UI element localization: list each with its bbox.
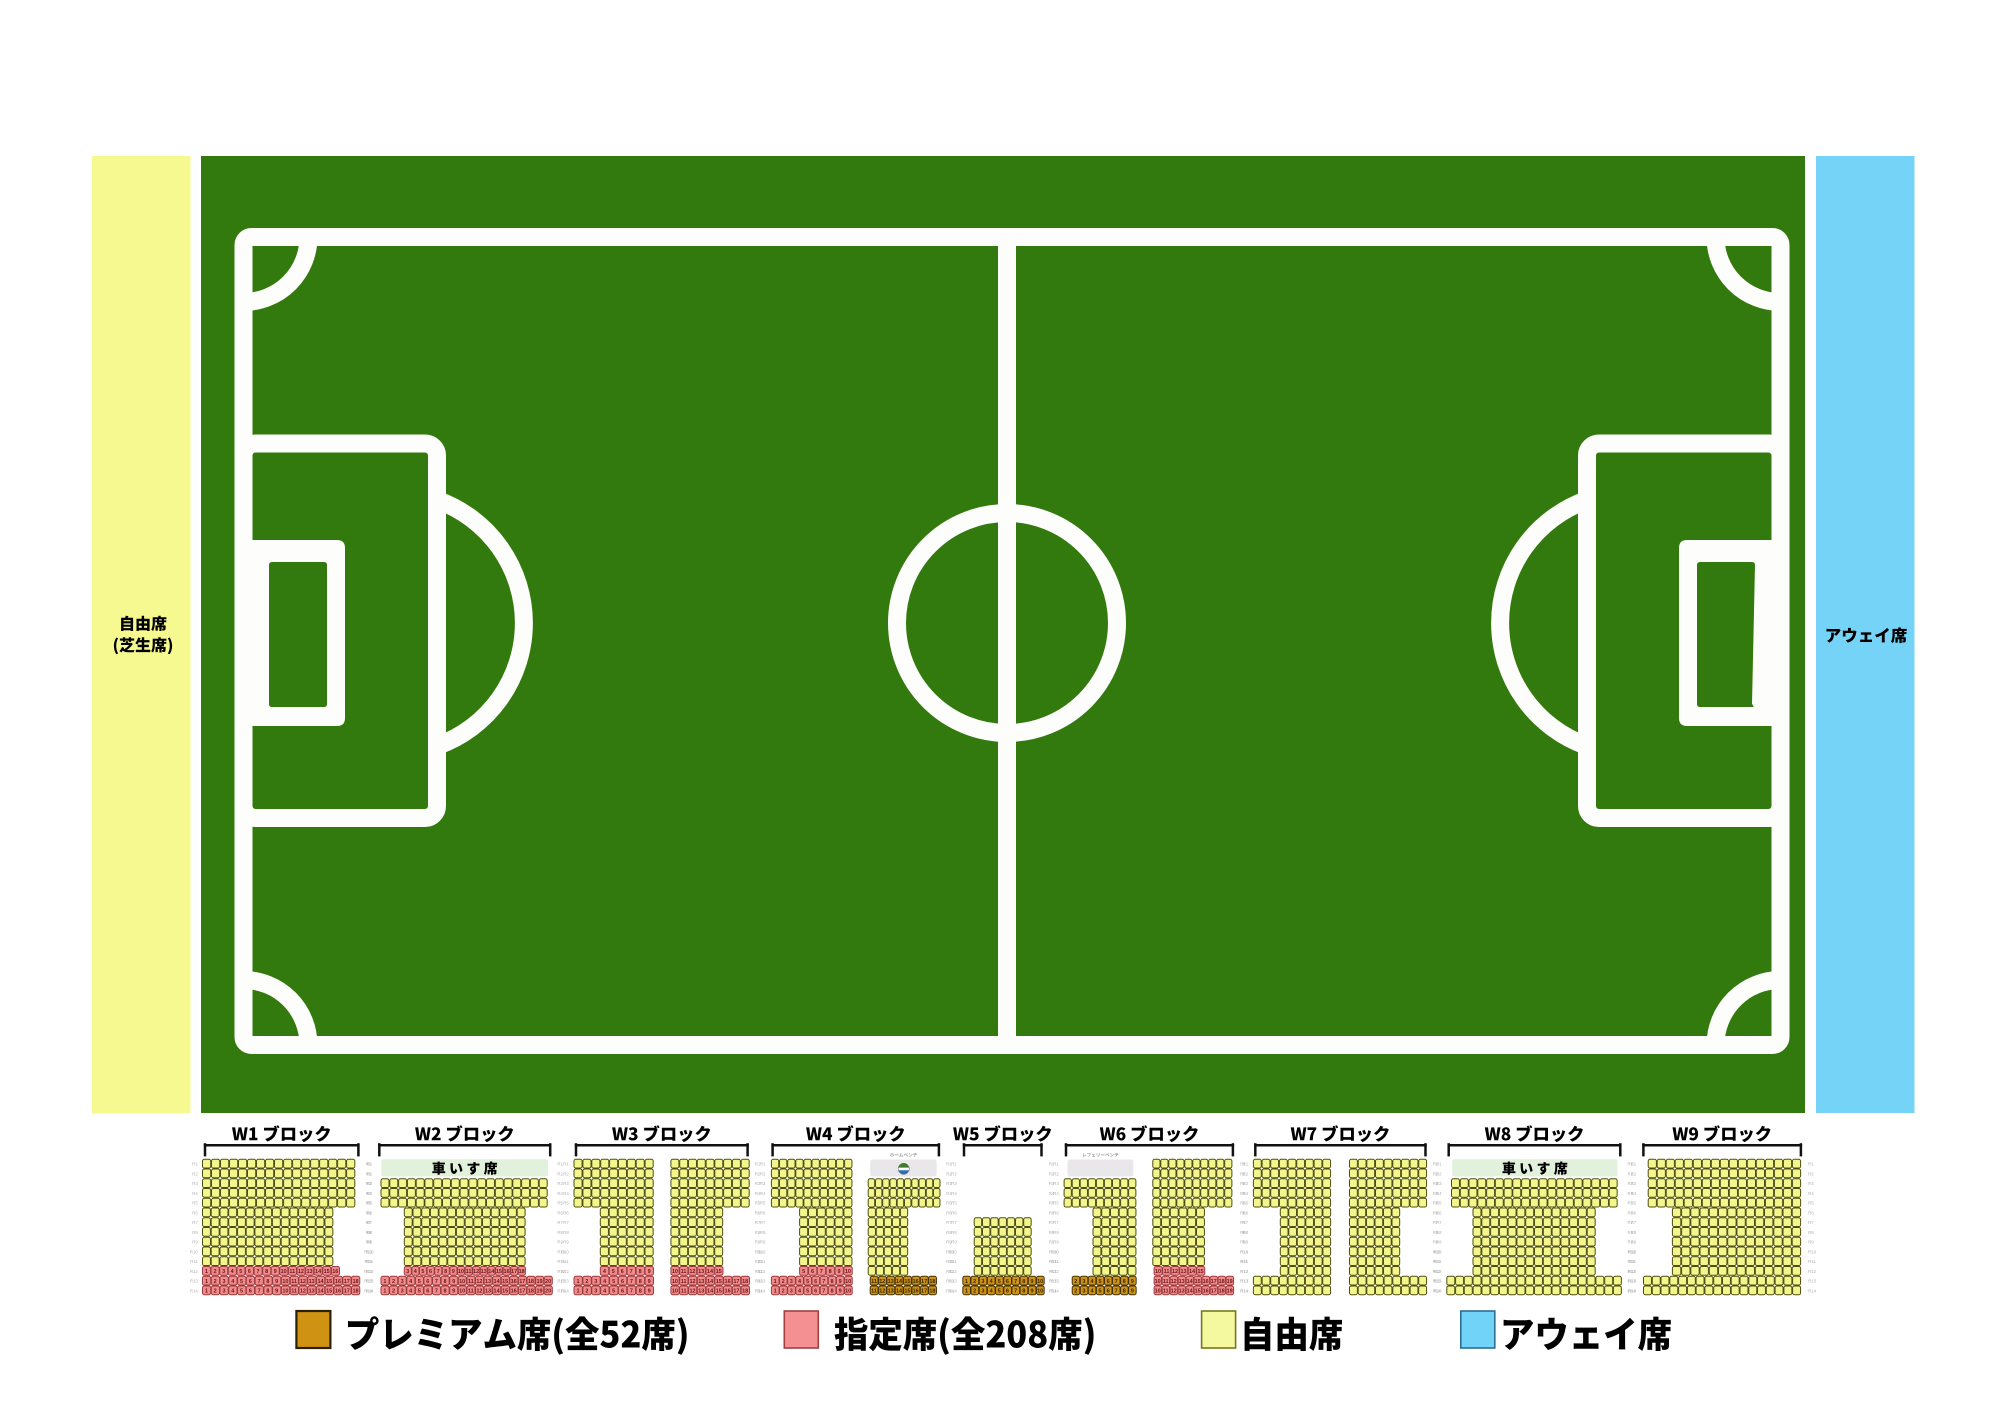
- svg-text:R13: R13: [1808, 1279, 1816, 1284]
- svg-text:R12: R12: [1051, 1269, 1059, 1274]
- svg-text:R12: R12: [190, 1269, 198, 1274]
- svg-text:R14: R14: [1434, 1289, 1442, 1294]
- svg-text:R3: R3: [760, 1181, 766, 1186]
- svg-text:7: 7: [435, 1289, 438, 1295]
- svg-text:14: 14: [707, 1279, 714, 1285]
- svg-text:11: 11: [468, 1289, 474, 1295]
- svg-text:10: 10: [459, 1279, 465, 1285]
- svg-text:R8: R8: [1053, 1230, 1059, 1235]
- svg-text:5: 5: [998, 1279, 1001, 1285]
- svg-text:R12: R12: [364, 1269, 372, 1274]
- svg-text:15: 15: [1195, 1289, 1201, 1295]
- svg-text:R13: R13: [1240, 1279, 1248, 1284]
- svg-text:14: 14: [896, 1279, 903, 1285]
- svg-text:8: 8: [1123, 1289, 1126, 1295]
- svg-text:R11: R11: [190, 1259, 198, 1264]
- svg-text:18: 18: [929, 1279, 935, 1285]
- svg-text:R11: R11: [1629, 1259, 1637, 1264]
- svg-text:R1: R1: [1631, 1162, 1637, 1167]
- svg-text:R9: R9: [1808, 1240, 1814, 1245]
- svg-text:16: 16: [913, 1289, 919, 1295]
- svg-text:7: 7: [630, 1269, 633, 1275]
- svg-text:R6: R6: [192, 1211, 198, 1216]
- svg-text:R2: R2: [1053, 1172, 1059, 1177]
- svg-text:13: 13: [485, 1279, 491, 1285]
- svg-text:14: 14: [1187, 1289, 1194, 1295]
- svg-text:R2: R2: [951, 1172, 957, 1177]
- svg-text:19: 19: [536, 1289, 542, 1295]
- svg-text:R6: R6: [760, 1211, 766, 1216]
- svg-text:R14: R14: [949, 1289, 957, 1294]
- svg-text:15: 15: [496, 1269, 502, 1275]
- svg-text:R10: R10: [1628, 1250, 1636, 1255]
- svg-text:2: 2: [782, 1289, 785, 1295]
- svg-text:13: 13: [698, 1269, 704, 1275]
- svg-text:5: 5: [240, 1289, 243, 1295]
- svg-text:13: 13: [1180, 1269, 1186, 1275]
- svg-text:18: 18: [742, 1279, 748, 1285]
- svg-text:R8: R8: [760, 1230, 766, 1235]
- svg-text:R6: R6: [1808, 1211, 1814, 1216]
- svg-text:11: 11: [871, 1279, 877, 1285]
- svg-text:R13: R13: [561, 1279, 569, 1284]
- svg-text:10: 10: [845, 1279, 851, 1285]
- svg-text:R9: R9: [1436, 1240, 1442, 1245]
- svg-text:17: 17: [733, 1279, 739, 1285]
- svg-text:3: 3: [790, 1289, 793, 1295]
- svg-text:5: 5: [612, 1289, 615, 1295]
- svg-text:10: 10: [672, 1279, 678, 1285]
- svg-text:9: 9: [1030, 1289, 1033, 1295]
- svg-text:R7: R7: [1631, 1220, 1637, 1225]
- svg-text:8: 8: [265, 1269, 268, 1275]
- svg-text:3: 3: [222, 1279, 225, 1285]
- svg-text:1: 1: [383, 1289, 386, 1295]
- svg-text:R1: R1: [1053, 1162, 1059, 1167]
- svg-text:2: 2: [782, 1279, 785, 1285]
- svg-text:R9: R9: [951, 1240, 957, 1245]
- svg-text:14: 14: [1187, 1279, 1194, 1285]
- svg-text:R10: R10: [364, 1250, 372, 1255]
- svg-text:18: 18: [742, 1289, 748, 1295]
- svg-text:19: 19: [1227, 1289, 1233, 1295]
- svg-text:R4: R4: [1243, 1191, 1249, 1196]
- svg-text:R12: R12: [1808, 1269, 1816, 1274]
- svg-text:7: 7: [822, 1279, 825, 1285]
- svg-text:18: 18: [1219, 1279, 1225, 1285]
- svg-text:5: 5: [239, 1269, 242, 1275]
- svg-text:6: 6: [621, 1269, 624, 1275]
- svg-text:12: 12: [476, 1279, 482, 1285]
- svg-text:R6: R6: [367, 1211, 373, 1216]
- svg-text:13: 13: [698, 1279, 704, 1285]
- svg-text:9: 9: [274, 1269, 277, 1275]
- svg-text:14: 14: [488, 1269, 495, 1275]
- svg-text:R5: R5: [563, 1201, 569, 1206]
- svg-text:R3: R3: [951, 1181, 957, 1186]
- svg-text:6: 6: [429, 1269, 432, 1275]
- svg-text:12: 12: [1171, 1289, 1177, 1295]
- svg-text:18: 18: [528, 1289, 534, 1295]
- svg-text:13: 13: [698, 1289, 704, 1295]
- svg-text:R6: R6: [1436, 1211, 1442, 1216]
- svg-text:13: 13: [888, 1279, 894, 1285]
- svg-text:R4: R4: [1053, 1191, 1059, 1196]
- svg-text:R10: R10: [758, 1250, 766, 1255]
- svg-text:10: 10: [282, 1279, 288, 1285]
- svg-text:6: 6: [811, 1269, 814, 1275]
- svg-text:R14: R14: [758, 1289, 766, 1294]
- svg-text:10: 10: [1155, 1279, 1161, 1285]
- svg-text:1: 1: [205, 1279, 208, 1285]
- svg-text:17: 17: [344, 1289, 350, 1295]
- svg-text:12: 12: [689, 1289, 695, 1295]
- svg-text:R5: R5: [1631, 1201, 1637, 1206]
- svg-text:12: 12: [1171, 1279, 1177, 1285]
- svg-text:19: 19: [536, 1279, 542, 1285]
- svg-text:5: 5: [240, 1279, 243, 1285]
- svg-text:6: 6: [1006, 1289, 1009, 1295]
- svg-text:3: 3: [401, 1289, 404, 1295]
- svg-text:6: 6: [248, 1269, 251, 1275]
- svg-text:R9: R9: [1631, 1240, 1637, 1245]
- svg-text:R11: R11: [1051, 1259, 1059, 1264]
- svg-text:3: 3: [222, 1269, 225, 1275]
- svg-text:R4: R4: [1808, 1191, 1814, 1196]
- svg-text:R5: R5: [1808, 1201, 1814, 1206]
- svg-text:13: 13: [485, 1289, 491, 1295]
- svg-text:6: 6: [1006, 1279, 1009, 1285]
- svg-text:14: 14: [494, 1289, 501, 1295]
- svg-text:R2: R2: [1436, 1172, 1442, 1177]
- svg-text:7: 7: [1014, 1289, 1017, 1295]
- svg-text:7: 7: [630, 1289, 633, 1295]
- svg-text:13: 13: [309, 1279, 315, 1285]
- svg-text:9: 9: [648, 1269, 651, 1275]
- svg-text:6: 6: [426, 1289, 429, 1295]
- svg-text:15: 15: [904, 1289, 910, 1295]
- svg-text:R12: R12: [1434, 1269, 1442, 1274]
- svg-text:R8: R8: [1808, 1230, 1814, 1235]
- svg-text:R3: R3: [1631, 1181, 1637, 1186]
- svg-text:16: 16: [511, 1289, 517, 1295]
- svg-text:3: 3: [594, 1289, 597, 1295]
- svg-text:9: 9: [275, 1289, 278, 1295]
- svg-text:1: 1: [965, 1279, 968, 1285]
- svg-text:9: 9: [452, 1279, 455, 1285]
- svg-text:3: 3: [790, 1279, 793, 1285]
- svg-text:R14: R14: [1628, 1289, 1636, 1294]
- svg-text:R10: R10: [1434, 1250, 1442, 1255]
- svg-text:13: 13: [481, 1269, 487, 1275]
- svg-text:7: 7: [820, 1269, 823, 1275]
- svg-text:5: 5: [421, 1269, 424, 1275]
- svg-text:9: 9: [275, 1279, 278, 1285]
- svg-text:R5: R5: [192, 1201, 198, 1206]
- svg-text:14: 14: [707, 1269, 714, 1275]
- svg-text:R1: R1: [1243, 1162, 1249, 1167]
- svg-text:R8: R8: [951, 1230, 957, 1235]
- svg-text:10: 10: [845, 1269, 851, 1275]
- svg-text:R12: R12: [949, 1269, 957, 1274]
- svg-text:R12: R12: [1628, 1269, 1636, 1274]
- svg-text:11: 11: [681, 1269, 687, 1275]
- svg-text:7: 7: [1115, 1289, 1118, 1295]
- svg-text:10: 10: [1155, 1269, 1161, 1275]
- svg-text:10: 10: [1155, 1289, 1161, 1295]
- svg-text:R1: R1: [192, 1162, 198, 1167]
- svg-text:R3: R3: [367, 1181, 373, 1186]
- svg-text:5: 5: [1098, 1279, 1101, 1285]
- svg-text:1: 1: [383, 1279, 386, 1285]
- svg-text:6: 6: [426, 1279, 429, 1285]
- svg-text:R6: R6: [951, 1211, 957, 1216]
- svg-text:R13: R13: [190, 1279, 198, 1284]
- svg-text:R14: R14: [364, 1289, 372, 1294]
- svg-text:R1: R1: [367, 1162, 373, 1167]
- svg-text:2: 2: [214, 1289, 217, 1295]
- svg-text:15: 15: [716, 1289, 722, 1295]
- svg-text:R6: R6: [1631, 1211, 1637, 1216]
- svg-text:R9: R9: [760, 1240, 766, 1245]
- svg-text:18: 18: [528, 1279, 534, 1285]
- svg-text:R11: R11: [949, 1259, 957, 1264]
- svg-text:17: 17: [1211, 1289, 1217, 1295]
- svg-text:R2: R2: [192, 1172, 198, 1177]
- svg-text:R7: R7: [563, 1220, 569, 1225]
- svg-text:11: 11: [289, 1269, 295, 1275]
- svg-text:9: 9: [1030, 1279, 1033, 1285]
- svg-text:8: 8: [830, 1279, 833, 1285]
- svg-text:R7: R7: [760, 1220, 766, 1225]
- svg-text:8: 8: [1022, 1279, 1025, 1285]
- svg-text:R1: R1: [1808, 1162, 1814, 1167]
- svg-text:R5: R5: [760, 1201, 766, 1206]
- svg-text:8: 8: [830, 1289, 833, 1295]
- svg-text:16: 16: [511, 1279, 517, 1285]
- svg-text:8: 8: [443, 1289, 446, 1295]
- svg-text:16: 16: [503, 1269, 509, 1275]
- svg-text:9: 9: [648, 1279, 651, 1285]
- svg-text:11: 11: [466, 1269, 472, 1275]
- svg-text:17: 17: [511, 1269, 517, 1275]
- svg-text:8: 8: [639, 1269, 642, 1275]
- svg-text:8: 8: [639, 1289, 642, 1295]
- svg-text:R7: R7: [1053, 1220, 1059, 1225]
- svg-text:R12: R12: [758, 1269, 766, 1274]
- svg-text:3: 3: [401, 1279, 404, 1285]
- svg-text:R11: R11: [1241, 1259, 1249, 1264]
- svg-text:16: 16: [725, 1279, 731, 1285]
- svg-text:18: 18: [1219, 1289, 1225, 1295]
- svg-text:7: 7: [1115, 1279, 1118, 1285]
- svg-text:13: 13: [1179, 1289, 1185, 1295]
- svg-text:20: 20: [545, 1279, 551, 1285]
- svg-text:16: 16: [725, 1289, 731, 1295]
- svg-text:R1: R1: [951, 1162, 957, 1167]
- svg-text:R5: R5: [1436, 1201, 1442, 1206]
- svg-text:12: 12: [689, 1279, 695, 1285]
- svg-text:R7: R7: [367, 1220, 373, 1225]
- svg-text:6: 6: [249, 1289, 252, 1295]
- svg-text:3: 3: [1082, 1289, 1085, 1295]
- svg-text:R7: R7: [1436, 1220, 1442, 1225]
- svg-text:R4: R4: [367, 1191, 373, 1196]
- svg-text:1: 1: [576, 1289, 579, 1295]
- svg-text:R11: R11: [1808, 1259, 1816, 1264]
- svg-text:8: 8: [266, 1279, 269, 1285]
- svg-text:R10: R10: [1051, 1250, 1059, 1255]
- svg-text:13: 13: [1179, 1279, 1185, 1285]
- svg-text:R14: R14: [561, 1289, 569, 1294]
- svg-text:17: 17: [519, 1279, 525, 1285]
- svg-text:R3: R3: [192, 1181, 198, 1186]
- svg-text:17: 17: [921, 1289, 927, 1295]
- svg-text:6: 6: [621, 1289, 624, 1295]
- svg-text:17: 17: [1211, 1279, 1217, 1285]
- svg-text:1: 1: [205, 1289, 208, 1295]
- svg-text:14: 14: [494, 1279, 501, 1285]
- svg-text:1: 1: [774, 1289, 777, 1295]
- svg-text:10: 10: [459, 1289, 465, 1295]
- svg-text:1: 1: [576, 1279, 579, 1285]
- svg-text:5: 5: [802, 1269, 805, 1275]
- svg-text:7: 7: [258, 1289, 261, 1295]
- svg-text:R7: R7: [1243, 1220, 1249, 1225]
- svg-text:3: 3: [222, 1289, 225, 1295]
- svg-text:14: 14: [317, 1279, 324, 1285]
- svg-text:7: 7: [630, 1279, 633, 1285]
- svg-text:11: 11: [291, 1289, 297, 1295]
- svg-text:2: 2: [392, 1289, 395, 1295]
- svg-text:9: 9: [1131, 1279, 1134, 1285]
- svg-text:R8: R8: [367, 1230, 373, 1235]
- svg-text:R4: R4: [192, 1191, 198, 1196]
- svg-text:13: 13: [888, 1289, 894, 1295]
- svg-text:R3: R3: [563, 1181, 569, 1186]
- svg-text:10: 10: [458, 1269, 464, 1275]
- svg-text:R5: R5: [1053, 1201, 1059, 1206]
- svg-text:12: 12: [1172, 1269, 1178, 1275]
- svg-text:10: 10: [282, 1289, 288, 1295]
- svg-text:14: 14: [1189, 1269, 1196, 1275]
- svg-text:6: 6: [1107, 1279, 1110, 1285]
- svg-text:9: 9: [452, 1269, 455, 1275]
- svg-text:8: 8: [639, 1279, 642, 1285]
- svg-text:5: 5: [998, 1289, 1001, 1295]
- svg-text:9: 9: [1131, 1289, 1134, 1295]
- svg-text:R10: R10: [949, 1250, 957, 1255]
- svg-text:R4: R4: [760, 1191, 766, 1196]
- svg-text:15: 15: [502, 1289, 508, 1295]
- svg-text:R8: R8: [1436, 1230, 1442, 1235]
- svg-text:R11: R11: [1434, 1259, 1442, 1264]
- svg-text:15: 15: [716, 1279, 722, 1285]
- svg-text:5: 5: [418, 1279, 421, 1285]
- svg-text:12: 12: [689, 1269, 695, 1275]
- svg-text:R13: R13: [949, 1279, 957, 1284]
- svg-text:16: 16: [335, 1279, 341, 1285]
- svg-text:2: 2: [585, 1289, 588, 1295]
- svg-text:R8: R8: [1631, 1230, 1637, 1235]
- svg-text:12: 12: [300, 1279, 306, 1285]
- svg-text:R13: R13: [1434, 1279, 1442, 1284]
- svg-text:8: 8: [1022, 1289, 1025, 1295]
- svg-text:1: 1: [965, 1289, 968, 1295]
- svg-text:R10: R10: [190, 1250, 198, 1255]
- svg-text:R11: R11: [561, 1259, 569, 1264]
- svg-text:10: 10: [1037, 1279, 1043, 1285]
- svg-text:15: 15: [1195, 1279, 1201, 1285]
- svg-text:3: 3: [981, 1289, 984, 1295]
- svg-text:R9: R9: [563, 1240, 569, 1245]
- svg-text:13: 13: [306, 1269, 312, 1275]
- svg-text:2: 2: [213, 1269, 216, 1275]
- svg-text:10: 10: [1037, 1289, 1043, 1295]
- svg-text:R7: R7: [1808, 1220, 1814, 1225]
- svg-text:12: 12: [476, 1289, 482, 1295]
- svg-text:R3: R3: [1053, 1181, 1059, 1186]
- svg-text:5: 5: [418, 1289, 421, 1295]
- svg-text:15: 15: [502, 1279, 508, 1285]
- svg-text:R6: R6: [563, 1211, 569, 1216]
- svg-text:11: 11: [1163, 1289, 1169, 1295]
- svg-text:16: 16: [335, 1289, 341, 1295]
- svg-text:10: 10: [845, 1289, 851, 1295]
- svg-text:R3: R3: [1436, 1181, 1442, 1186]
- svg-text:R14: R14: [1240, 1289, 1248, 1294]
- svg-text:8: 8: [443, 1279, 446, 1285]
- svg-text:11: 11: [468, 1279, 474, 1285]
- svg-text:12: 12: [300, 1289, 306, 1295]
- svg-text:R10: R10: [1808, 1250, 1816, 1255]
- svg-text:10: 10: [672, 1289, 678, 1295]
- svg-text:1: 1: [774, 1279, 777, 1285]
- svg-text:14: 14: [315, 1269, 322, 1275]
- svg-text:R8: R8: [563, 1230, 569, 1235]
- svg-text:3: 3: [981, 1279, 984, 1285]
- svg-text:R4: R4: [1631, 1191, 1637, 1196]
- svg-text:15: 15: [326, 1289, 332, 1295]
- svg-text:15: 15: [324, 1269, 330, 1275]
- svg-text:R13: R13: [364, 1279, 372, 1284]
- svg-text:14: 14: [896, 1289, 903, 1295]
- svg-text:R1: R1: [1436, 1162, 1442, 1167]
- svg-text:R13: R13: [1051, 1279, 1059, 1284]
- svg-text:11: 11: [1163, 1279, 1169, 1285]
- svg-text:6: 6: [249, 1279, 252, 1285]
- svg-text:17: 17: [921, 1279, 927, 1285]
- svg-text:R5: R5: [367, 1201, 373, 1206]
- svg-text:15: 15: [904, 1279, 910, 1285]
- svg-text:3: 3: [1082, 1279, 1085, 1285]
- svg-text:6: 6: [814, 1289, 817, 1295]
- svg-text:7: 7: [258, 1279, 261, 1285]
- svg-text:R9: R9: [192, 1240, 198, 1245]
- svg-text:11: 11: [291, 1279, 297, 1285]
- svg-text:8: 8: [266, 1289, 269, 1295]
- svg-text:15: 15: [1197, 1269, 1203, 1275]
- svg-text:R2: R2: [760, 1172, 766, 1177]
- svg-text:7: 7: [435, 1279, 438, 1285]
- svg-text:R7: R7: [192, 1220, 198, 1225]
- svg-text:5: 5: [612, 1279, 615, 1285]
- svg-text:8: 8: [829, 1269, 832, 1275]
- svg-text:6: 6: [1107, 1289, 1110, 1295]
- svg-text:16: 16: [913, 1279, 919, 1285]
- svg-text:R12: R12: [561, 1269, 569, 1274]
- svg-text:R9: R9: [1053, 1240, 1059, 1245]
